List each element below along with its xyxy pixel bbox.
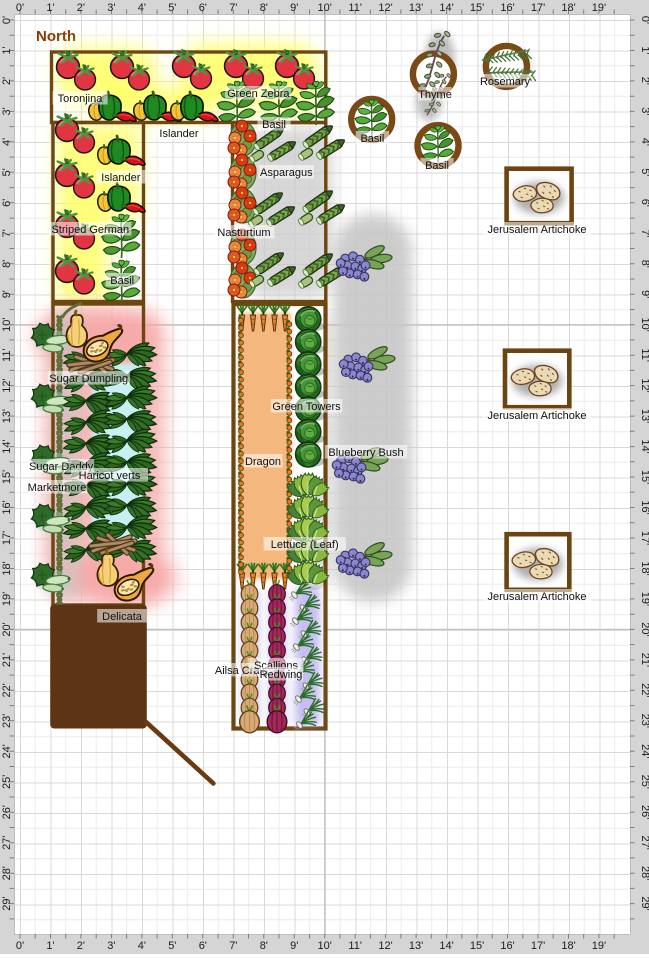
svg-text:13': 13' [409,940,423,952]
svg-text:3': 3' [1,107,13,115]
svg-text:Rosemary: Rosemary [480,76,531,88]
svg-text:6': 6' [1,199,13,207]
svg-text:0': 0' [16,2,24,14]
svg-text:Jerusalem Artichoke: Jerusalem Artichoke [487,591,586,603]
svg-text:21': 21' [639,653,649,667]
svg-text:16': 16' [500,2,514,14]
svg-text:Basil: Basil [425,160,449,172]
svg-text:6': 6' [199,2,207,14]
svg-text:19': 19' [1,592,13,606]
svg-text:North: North [36,28,76,45]
svg-text:8': 8' [260,940,268,952]
svg-text:Basil: Basil [360,133,384,145]
svg-text:15': 15' [470,940,484,952]
svg-text:11': 11' [1,348,13,362]
svg-text:9': 9' [290,2,298,14]
svg-text:5': 5' [168,940,176,952]
svg-text:2': 2' [1,77,13,85]
svg-text:Islander: Islander [159,128,198,140]
svg-text:10': 10' [1,318,13,332]
svg-text:Striped German: Striped German [51,224,129,236]
svg-text:28': 28' [1,866,13,880]
svg-text:11': 11' [639,348,649,362]
svg-text:8': 8' [1,260,13,268]
svg-text:1': 1' [1,46,13,54]
svg-text:7': 7' [229,2,237,14]
svg-text:Islander: Islander [101,172,140,184]
svg-text:12': 12' [1,378,13,392]
svg-text:14': 14' [639,439,649,453]
svg-text:Sugar Dumpling: Sugar Dumpling [49,373,128,385]
svg-text:13': 13' [1,409,13,423]
svg-text:28': 28' [639,866,649,880]
svg-text:19': 19' [592,2,606,14]
svg-text:7': 7' [639,229,649,237]
svg-text:5': 5' [639,168,649,176]
svg-text:13': 13' [639,409,649,423]
svg-text:4': 4' [1,138,13,146]
svg-text:Asparagus: Asparagus [260,167,313,179]
svg-text:3': 3' [107,2,115,14]
svg-text:Thyme: Thyme [418,89,452,101]
svg-text:Jerusalem Artichoke: Jerusalem Artichoke [487,410,586,422]
svg-text:14': 14' [1,439,13,453]
svg-text:8': 8' [639,260,649,268]
svg-text:29': 29' [639,896,649,910]
svg-text:15': 15' [1,470,13,484]
svg-text:18': 18' [561,940,575,952]
svg-text:17': 17' [531,940,545,952]
svg-text:25': 25' [639,775,649,789]
svg-text:0': 0' [16,940,24,952]
svg-text:14': 14' [439,2,453,14]
svg-text:Marketmore: Marketmore [28,482,87,494]
svg-text:18': 18' [561,2,575,14]
svg-text:27': 27' [1,836,13,850]
svg-text:26': 26' [639,805,649,819]
svg-text:19': 19' [639,592,649,606]
svg-text:12': 12' [378,2,392,14]
svg-text:1': 1' [46,2,54,14]
svg-text:13': 13' [409,2,423,14]
svg-text:Green Towers: Green Towers [272,401,341,413]
svg-text:16': 16' [1,500,13,514]
svg-text:0': 0' [639,16,649,24]
svg-text:4': 4' [138,2,146,14]
svg-text:5': 5' [168,2,176,14]
svg-text:7': 7' [1,229,13,237]
svg-text:4': 4' [639,138,649,146]
svg-text:20': 20' [1,622,13,636]
svg-text:12': 12' [378,940,392,952]
svg-text:9': 9' [290,940,298,952]
svg-text:Redwing: Redwing [260,669,303,681]
svg-text:24': 24' [1,744,13,758]
svg-text:7': 7' [229,940,237,952]
svg-text:29': 29' [1,896,13,910]
svg-text:15': 15' [639,470,649,484]
svg-text:17': 17' [531,2,545,14]
svg-text:24': 24' [639,744,649,758]
svg-text:21': 21' [1,653,13,667]
svg-text:1': 1' [639,46,649,54]
svg-text:2': 2' [77,940,85,952]
svg-text:15': 15' [470,2,484,14]
svg-text:10': 10' [318,2,332,14]
svg-text:5': 5' [1,168,13,176]
svg-text:Haricot verts: Haricot verts [79,470,141,482]
svg-text:3': 3' [107,940,115,952]
svg-text:11': 11' [348,940,362,952]
svg-text:Delicata: Delicata [102,611,143,623]
svg-text:16': 16' [500,940,514,952]
svg-text:23': 23' [639,714,649,728]
svg-text:6': 6' [199,940,207,952]
svg-text:10': 10' [639,318,649,332]
svg-text:1': 1' [46,940,54,952]
svg-text:6': 6' [639,199,649,207]
svg-text:9': 9' [1,290,13,298]
svg-text:20': 20' [639,622,649,636]
svg-text:27': 27' [639,836,649,850]
svg-text:11': 11' [348,2,362,14]
svg-text:17': 17' [639,531,649,545]
svg-text:4': 4' [138,940,146,952]
svg-text:25': 25' [1,775,13,789]
svg-text:Basil: Basil [262,119,286,131]
svg-text:19': 19' [592,940,606,952]
svg-text:26': 26' [1,805,13,819]
svg-text:14': 14' [439,940,453,952]
svg-text:Nasturtium: Nasturtium [217,227,270,239]
svg-text:Blueberry Bush: Blueberry Bush [328,447,403,459]
svg-text:8': 8' [260,2,268,14]
svg-text:22': 22' [1,683,13,697]
svg-text:22': 22' [639,683,649,697]
svg-text:Green Zebra: Green Zebra [227,88,290,100]
svg-text:Jerusalem Artichoke: Jerusalem Artichoke [487,224,586,236]
svg-text:17': 17' [1,531,13,545]
svg-text:23': 23' [1,714,13,728]
svg-text:2': 2' [77,2,85,14]
svg-text:Dragon: Dragon [245,456,281,468]
svg-text:16': 16' [639,500,649,514]
svg-text:10': 10' [318,940,332,952]
svg-text:18': 18' [639,561,649,575]
svg-text:0': 0' [1,16,13,24]
svg-text:Lettuce (Leaf): Lettuce (Leaf) [271,539,339,551]
svg-text:2': 2' [639,77,649,85]
svg-text:12': 12' [639,378,649,392]
svg-text:18': 18' [1,561,13,575]
svg-text:Toronjina: Toronjina [58,93,104,105]
svg-text:Basil: Basil [110,275,134,287]
svg-text:3': 3' [639,107,649,115]
svg-text:9': 9' [639,290,649,298]
